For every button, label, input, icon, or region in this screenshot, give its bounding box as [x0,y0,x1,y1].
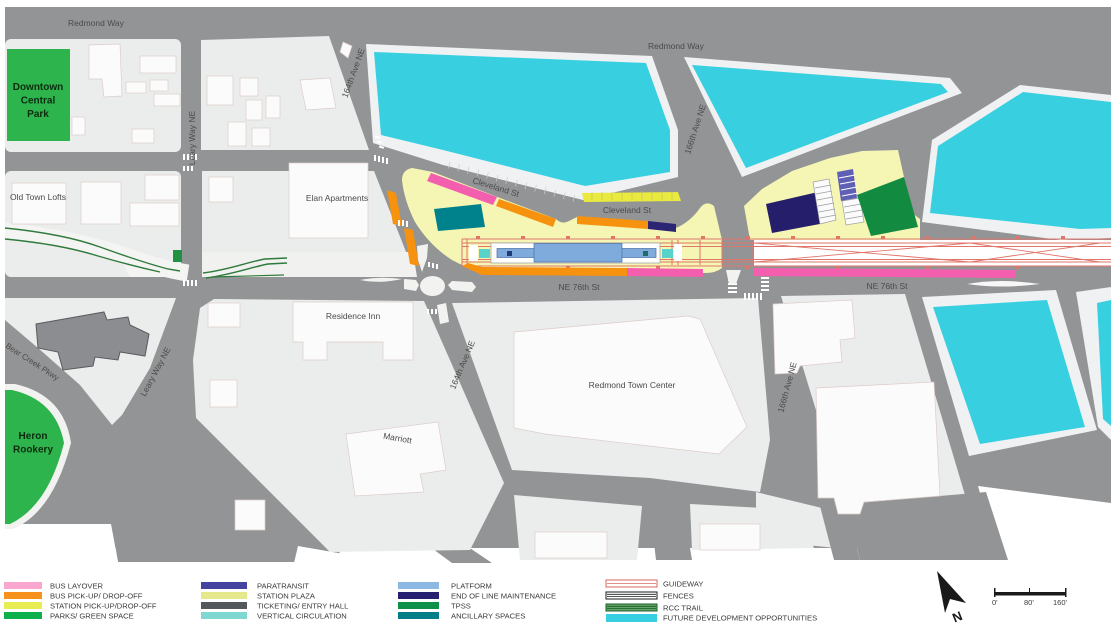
svg-text:Cleveland St: Cleveland St [603,205,652,215]
svg-text:Heron: Heron [19,431,48,442]
svg-text:GUIDEWAY: GUIDEWAY [663,580,704,589]
svg-text:Residence Inn: Residence Inn [326,311,381,321]
svg-text:TPSS: TPSS [451,602,471,611]
svg-text:Redmond Way: Redmond Way [68,18,125,28]
svg-text:Old Town Lofts: Old Town Lofts [10,192,66,202]
svg-text:STATION PLAZA: STATION PLAZA [257,592,316,601]
svg-text:ANCILLARY SPACES: ANCILLARY SPACES [451,612,525,621]
svg-text:160': 160' [1053,598,1068,607]
svg-text:Central: Central [21,96,56,107]
svg-text:FUTURE DEVELOPMENT OPPORTUNITI: FUTURE DEVELOPMENT OPPORTUNITIES [663,614,817,623]
svg-text:Park: Park [27,109,49,120]
svg-text:0': 0' [992,598,998,607]
svg-text:END OF LINE MAINTENANCE: END OF LINE MAINTENANCE [451,592,556,601]
svg-text:NE 76th St: NE 76th St [866,281,908,291]
svg-text:NE 76th St: NE 76th St [558,282,600,292]
svg-text:TICKETING/ ENTRY HALL: TICKETING/ ENTRY HALL [257,602,348,611]
svg-text:VERTICAL CIRCULATION: VERTICAL CIRCULATION [257,612,347,621]
svg-text:RCC TRAIL: RCC TRAIL [663,604,703,613]
svg-text:80': 80' [1024,598,1034,607]
svg-text:Elan Apartments: Elan Apartments [306,193,368,203]
svg-text:Redmond Way: Redmond Way [648,41,705,51]
svg-text:STATION PICK-UP/DROP-OFF: STATION PICK-UP/DROP-OFF [50,602,157,611]
svg-text:Downtown: Downtown [13,82,64,93]
svg-text:PARKS/ GREEN SPACE: PARKS/ GREEN SPACE [50,612,134,621]
svg-text:Rookery: Rookery [13,445,53,456]
svg-text:PARATRANSIT: PARATRANSIT [257,582,309,591]
svg-text:Leary Way NE: Leary Way NE [187,110,197,165]
svg-text:BUS LAYOVER: BUS LAYOVER [50,582,104,591]
svg-text:PLATFORM: PLATFORM [451,582,492,591]
svg-text:FENCES: FENCES [663,592,694,601]
svg-text:BUS PICK-UP/ DROP-OFF: BUS PICK-UP/ DROP-OFF [50,592,143,601]
svg-text:Redmond Town Center: Redmond Town Center [589,380,676,390]
